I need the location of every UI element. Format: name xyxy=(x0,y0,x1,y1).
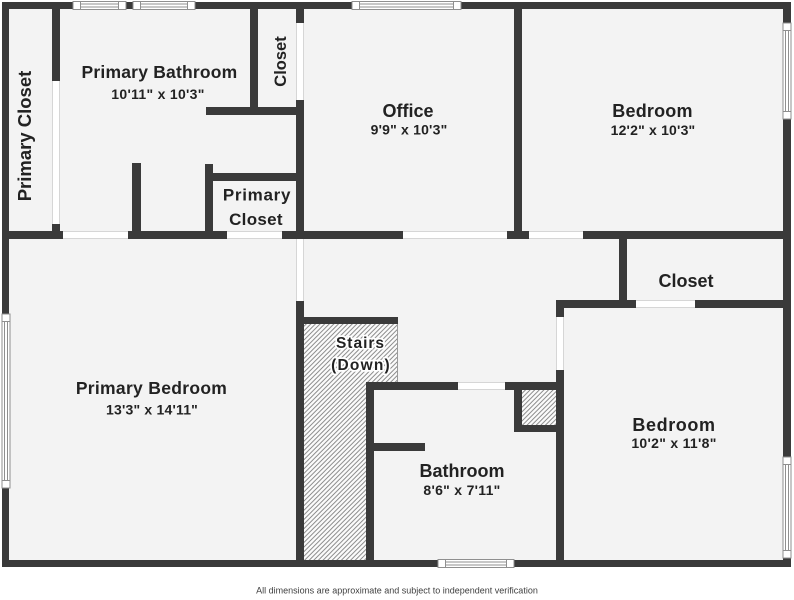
svg-text:Primary Bathroom: Primary Bathroom xyxy=(82,62,238,82)
svg-text:Bathroom: Bathroom xyxy=(420,461,505,481)
svg-text:13'3" x 14'11": 13'3" x 14'11" xyxy=(106,402,198,418)
svg-text:Bedroom: Bedroom xyxy=(612,101,692,121)
svg-text:12'2" x 10'3": 12'2" x 10'3" xyxy=(611,122,696,138)
svg-text:10'2" x 11'8": 10'2" x 11'8" xyxy=(631,435,716,451)
svg-text:(Down): (Down) xyxy=(331,357,391,374)
svg-text:Closet: Closet xyxy=(229,210,283,229)
svg-text:Primary Closet: Primary Closet xyxy=(14,71,35,202)
svg-text:Office: Office xyxy=(382,101,433,121)
svg-text:Closet: Closet xyxy=(658,271,713,291)
svg-text:All dimensions are approximate: All dimensions are approximate and subje… xyxy=(256,586,538,596)
svg-text:Primary Bedroom: Primary Bedroom xyxy=(76,378,227,398)
svg-text:Stairs: Stairs xyxy=(336,335,385,352)
svg-text:10'11" x 10'3": 10'11" x 10'3" xyxy=(111,86,204,102)
svg-text:8'6" x 7'11": 8'6" x 7'11" xyxy=(423,482,500,498)
svg-text:9'9" x 10'3": 9'9" x 10'3" xyxy=(371,122,448,138)
svg-text:Primary: Primary xyxy=(223,186,291,205)
svg-text:Closet: Closet xyxy=(272,36,290,87)
svg-text:Bedroom: Bedroom xyxy=(632,415,715,435)
